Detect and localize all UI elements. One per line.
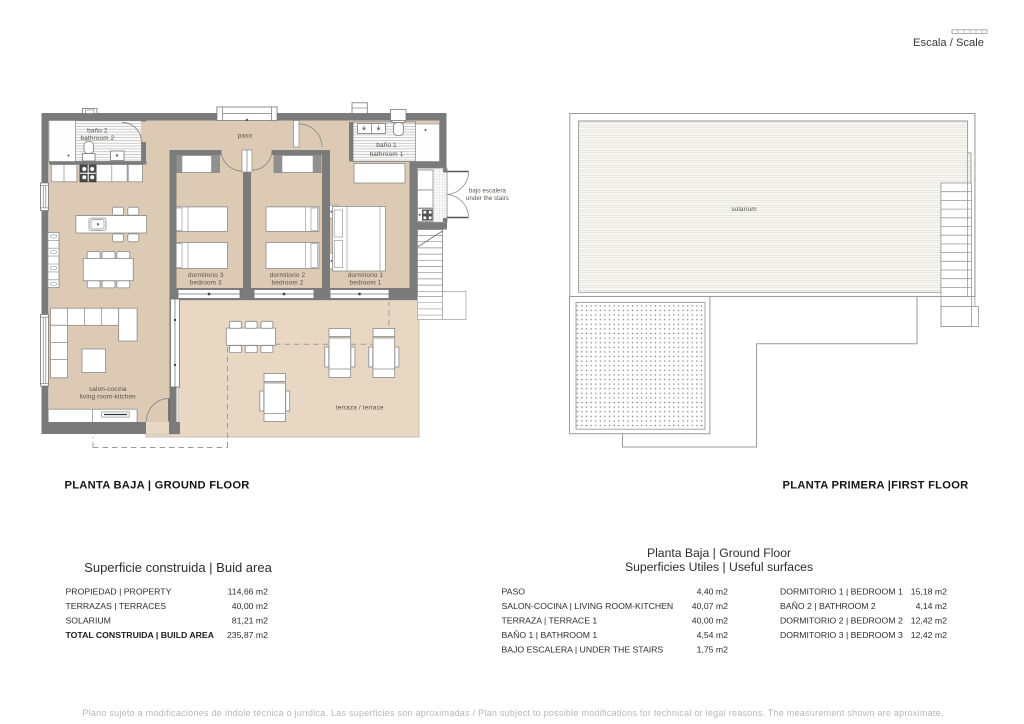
- svg-text:solarium: solarium: [731, 206, 756, 213]
- svg-text:DORMITORIO 2 | BEDROOM 2: DORMITORIO 2 | BEDROOM 2: [780, 616, 903, 626]
- svg-text:BAÑO 1 | BATHROOM 1: BAÑO 1 | BATHROOM 1: [502, 630, 598, 640]
- svg-text:bajo escalera: bajo escalera: [469, 188, 507, 194]
- svg-text:PLANTA PRIMERA |FIRST FLOOR: PLANTA PRIMERA |FIRST FLOOR: [783, 480, 969, 492]
- svg-text:Superficie construida | Buid a: Superficie construida | Buid area: [84, 560, 272, 575]
- svg-text:15,18 m2: 15,18 m2: [911, 587, 947, 597]
- svg-text:40,00 m2: 40,00 m2: [692, 616, 728, 626]
- svg-text:235,87 m2: 235,87 m2: [227, 630, 268, 640]
- svg-text:PLANTA BAJA | GROUND FLOOR: PLANTA BAJA | GROUND FLOOR: [65, 480, 250, 492]
- svg-text:dormitorio 2: dormitorio 2: [270, 272, 306, 279]
- svg-text:114,66 m2: 114,66 m2: [228, 587, 269, 597]
- svg-text:PROPIEDAD | PROPERTY: PROPIEDAD | PROPERTY: [66, 587, 172, 597]
- svg-text:BAJO ESCALERA | UNDER THE STAI: BAJO ESCALERA | UNDER THE STAIRS: [502, 645, 664, 655]
- svg-text:40,00 m2: 40,00 m2: [232, 601, 268, 611]
- svg-text:DORMITORIO 1 | BEDROOM 1: DORMITORIO 1 | BEDROOM 1: [780, 587, 903, 597]
- svg-text:bedroom 1: bedroom 1: [350, 280, 382, 287]
- svg-text:dormitorio 3: dormitorio 3: [188, 272, 224, 279]
- svg-text:bathroom 2: bathroom 2: [80, 135, 114, 142]
- svg-text:4,14 m2: 4,14 m2: [916, 601, 948, 611]
- svg-text:bedroom 3: bedroom 3: [190, 280, 222, 287]
- svg-text:bathroom 1: bathroom 1: [370, 151, 404, 158]
- svg-text:Plano sujeto a modificaciones: Plano sujeto a modificaciones de índole …: [82, 708, 943, 718]
- svg-text:terraza / terrace: terraza / terrace: [336, 405, 384, 412]
- svg-text:bedroom 2: bedroom 2: [272, 280, 304, 287]
- svg-text:baño 2: baño 2: [87, 127, 108, 134]
- svg-text:12,42 m2: 12,42 m2: [911, 616, 947, 626]
- svg-text:living room-kitchen: living room-kitchen: [80, 394, 136, 401]
- svg-text:Planta Baja | Ground Floor: Planta Baja | Ground Floor: [647, 546, 791, 560]
- svg-text:Escala / Scale: Escala / Scale: [913, 37, 984, 49]
- svg-text:12,42 m2: 12,42 m2: [911, 630, 947, 640]
- svg-text:1,75 m2: 1,75 m2: [697, 645, 729, 655]
- svg-text:40,07 m2: 40,07 m2: [692, 601, 728, 611]
- svg-text:SOLARIUM: SOLARIUM: [66, 616, 111, 626]
- svg-text:baño 1: baño 1: [376, 142, 397, 149]
- svg-text:Superficies Utiles | Useful su: Superficies Utiles | Useful surfaces: [625, 560, 813, 574]
- svg-text:salon-cocina: salon-cocina: [89, 386, 127, 393]
- svg-text:TOTAL CONSTRUIDA | BUILD AREA: TOTAL CONSTRUIDA | BUILD AREA: [66, 630, 215, 640]
- svg-text:TERRAZAS | TERRACES: TERRAZAS | TERRACES: [66, 601, 167, 611]
- svg-text:dormitorio 1: dormitorio 1: [348, 272, 384, 279]
- svg-text:TERRAZA | TERRACE 1: TERRAZA | TERRACE 1: [502, 616, 598, 626]
- svg-text:under the stairs: under the stairs: [466, 196, 509, 202]
- svg-text:BAÑO 2 | BATHROOM 2: BAÑO 2 | BATHROOM 2: [780, 601, 876, 611]
- svg-text:4,40 m2: 4,40 m2: [697, 587, 729, 597]
- svg-text:PASO: PASO: [502, 587, 526, 597]
- svg-text:4,54 m2: 4,54 m2: [697, 630, 729, 640]
- svg-text:81,21 m2: 81,21 m2: [232, 616, 268, 626]
- svg-text:paso: paso: [238, 132, 253, 139]
- svg-text:SALON-COCINA | LIVING ROOM-KIT: SALON-COCINA | LIVING ROOM-KITCHEN: [502, 601, 674, 611]
- svg-text:DORMITORIO 3 | BEDROOM 3: DORMITORIO 3 | BEDROOM 3: [780, 630, 903, 640]
